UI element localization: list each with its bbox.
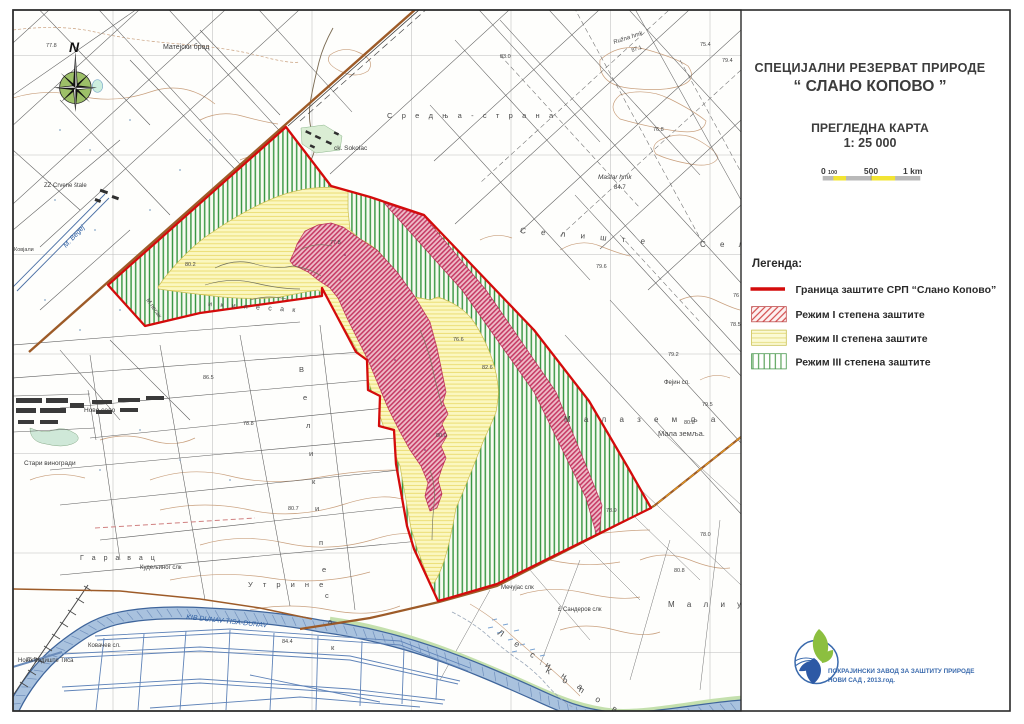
svg-text:ck. Sokolac: ck. Sokolac [334,145,368,152]
svg-text:78.9: 78.9 [606,508,617,514]
svg-text:78.5: 78.5 [730,322,741,328]
svg-text:80.0: 80.0 [436,433,447,439]
svg-text:100: 100 [828,170,837,176]
svg-text:86.5: 86.5 [203,375,214,381]
svg-text:Кудељиног слк: Кудељиног слк [140,565,182,571]
svg-text:80.8: 80.8 [684,420,695,426]
svg-text:Мечујас слк: Мечујас слк [501,585,534,591]
svg-text:76.8: 76.8 [653,127,664,133]
svg-text:Стари виногради: Стари виногради [24,460,76,467]
svg-text:83.0: 83.0 [500,54,511,60]
svg-text:СПЕЦИЈАЛНИ РЕЗЕРВАТ ПРИРОДЕ: СПЕЦИЈАЛНИ РЕЗЕРВАТ ПРИРОДЕ [755,61,986,75]
svg-text:Ковјали: Ковјали [14,247,34,253]
svg-text:79.4: 79.4 [722,58,733,64]
svg-text:и: и [309,449,313,458]
svg-text:82.6: 82.6 [482,365,493,371]
svg-text:80.7: 80.7 [288,506,299,512]
svg-text:80.2: 80.2 [185,262,196,268]
svg-text:е: е [303,393,307,402]
svg-text:У т р и н е: У т р и н е [248,580,327,589]
svg-text:79.6: 79.6 [596,264,607,270]
svg-text:Режим II степена заштите: Режим II степена заштите [796,333,928,345]
svg-text:Матејски брод: Матејски брод [163,43,209,51]
svg-text:1 km: 1 km [903,166,923,176]
svg-text:Ковачев сл.: Ковачев сл. [88,643,121,649]
svg-text:1: 25 000: 1: 25 000 [844,136,897,150]
svg-text:84.7: 84.7 [614,185,626,191]
svg-text:л: л [306,421,310,430]
svg-text:С р е д њ а - с т р а н а: С р е д њ а - с т р а н а [387,111,557,120]
svg-text:е: е [322,565,326,574]
svg-text:Граница заштите СРП “Слано Коп: Граница заштите СРП “Слано Копово” [796,284,997,296]
svg-text:79.2: 79.2 [668,352,679,358]
svg-text:Режим III степена заштите: Режим III степена заштите [796,357,931,369]
svg-text:М а л а з е м љ а: М а л а з е м љ а [564,415,721,424]
svg-text:76.6: 76.6 [453,337,464,343]
svg-text:Мала земља.: Мала земља. [658,429,705,438]
svg-text:84.4: 84.4 [282,639,293,645]
svg-text:77.8: 77.8 [330,240,341,246]
svg-text:Режим I степена заштите: Режим I степена заштите [796,309,925,321]
svg-text:79.5: 79.5 [702,402,713,408]
svg-text:ZZ Crvene štale: ZZ Crvene štale [44,183,87,189]
svg-text:75.5: 75.5 [26,657,37,663]
svg-text:и: и [315,504,319,513]
svg-text:Г а р а в а ц: Г а р а в а ц [80,555,158,562]
svg-text:ПРЕГЛЕДНА КАРТА: ПРЕГЛЕДНА КАРТА [811,121,929,135]
svg-text:НОВИ САД , 2013.год.: НОВИ САД , 2013.год. [828,677,895,684]
svg-text:80.8: 80.8 [674,568,685,574]
svg-text:п: п [319,538,323,547]
svg-text:76: 76 [733,293,739,299]
svg-text:78.0: 78.0 [700,532,711,538]
svg-text:ПОКРАЈИНСКИ ЗАВОД ЗА ЗАШТИТУ П: ПОКРАЈИНСКИ ЗАВОД ЗА ЗАШТИТУ ПРИРОДЕ [828,668,974,675]
svg-text:0: 0 [821,166,826,176]
svg-text:Фејин сл.: Фејин сл. [664,380,690,386]
svg-text:N: N [69,39,80,55]
svg-text:£ Сандеров слк: £ Сандеров слк [558,607,602,613]
svg-text:Ново село: Ново село [84,407,116,414]
svg-text:Maslar hmk: Maslar hmk [598,174,632,181]
svg-text:77.8: 77.8 [46,43,57,49]
svg-text:75.4: 75.4 [700,42,711,48]
svg-text:с: с [325,591,329,600]
svg-text:В: В [299,365,304,374]
svg-text:500: 500 [864,166,878,176]
svg-text:“ СЛАНО КОПОВО ”: “ СЛАНО КОПОВО ” [793,78,946,95]
svg-text:78.8: 78.8 [243,421,254,427]
svg-text:Легенда:: Легенда: [752,258,802,270]
